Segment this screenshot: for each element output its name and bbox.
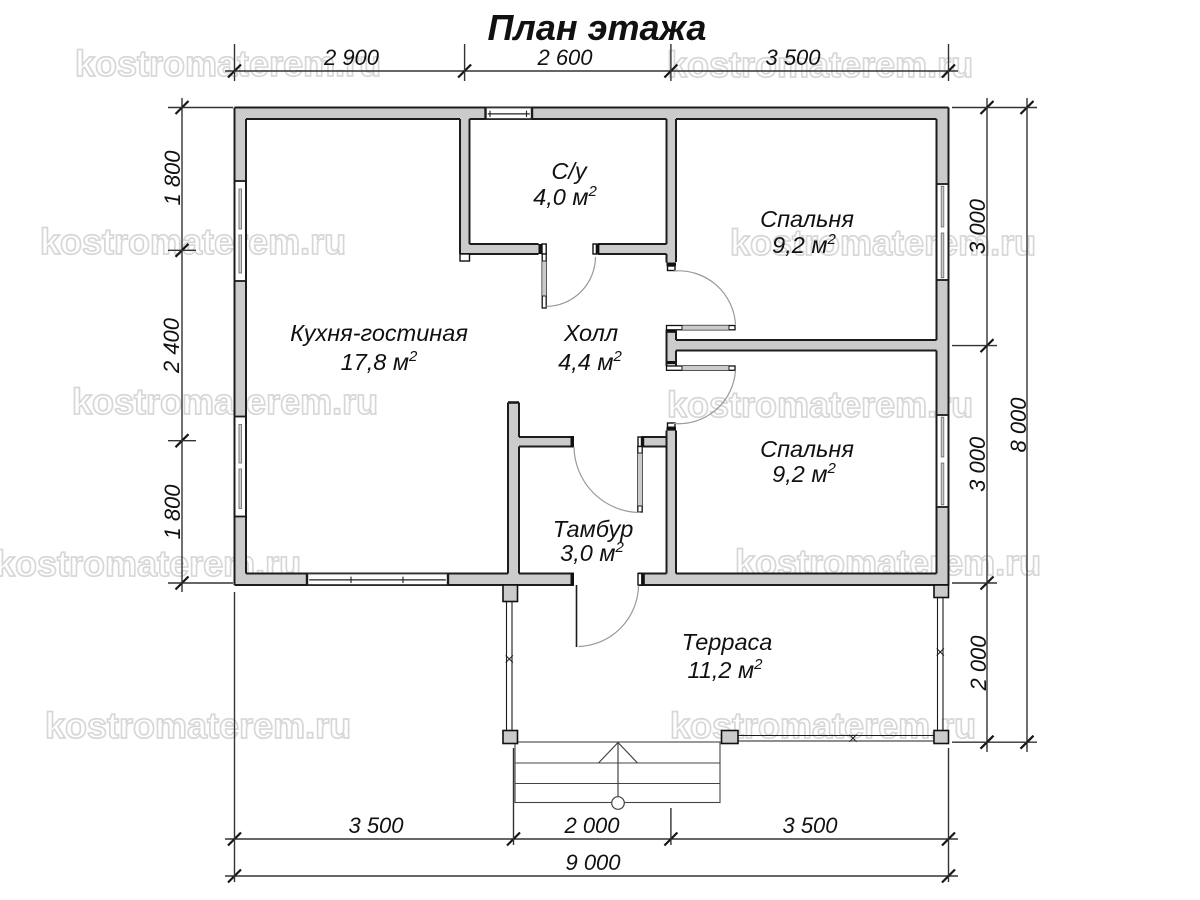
svg-text:3 500: 3 500 — [765, 45, 821, 70]
svg-text:2 000: 2 000 — [563, 813, 620, 838]
svg-text:3 500: 3 500 — [348, 813, 404, 838]
svg-text:План этажа: План этажа — [488, 7, 707, 48]
svg-text:3 000: 3 000 — [965, 198, 990, 254]
svg-text:4,0 м2: 4,0 м2 — [533, 183, 597, 210]
svg-text:1 800: 1 800 — [160, 150, 185, 206]
svg-text:1 800: 1 800 — [160, 484, 185, 540]
svg-text:9 000: 9 000 — [565, 850, 621, 875]
svg-text:С/у: С/у — [551, 158, 588, 184]
svg-text:Терраса: Терраса — [682, 629, 773, 655]
svg-text:11,2 м2: 11,2 м2 — [688, 656, 764, 683]
svg-text:17,8 м2: 17,8 м2 — [341, 348, 418, 375]
svg-text:Спальня: Спальня — [760, 206, 854, 232]
svg-text:2 900: 2 900 — [323, 45, 380, 70]
svg-text:3 000: 3 000 — [965, 436, 990, 492]
svg-text:3 500: 3 500 — [782, 813, 838, 838]
svg-text:2 000: 2 000 — [966, 635, 991, 692]
svg-text:Холл: Холл — [563, 320, 618, 346]
svg-text:8 000: 8 000 — [1006, 397, 1031, 453]
svg-text:9,2 м2: 9,2 м2 — [772, 231, 836, 258]
svg-text:9,2 м2: 9,2 м2 — [772, 460, 836, 487]
svg-text:3,0 м2: 3,0 м2 — [560, 539, 624, 566]
svg-text:Кухня-гостиная: Кухня-гостиная — [290, 320, 468, 346]
svg-text:2 600: 2 600 — [536, 45, 593, 70]
svg-text:Спальня: Спальня — [760, 436, 854, 462]
svg-text:4,4 м2: 4,4 м2 — [558, 348, 622, 375]
svg-text:2 400: 2 400 — [159, 317, 184, 374]
